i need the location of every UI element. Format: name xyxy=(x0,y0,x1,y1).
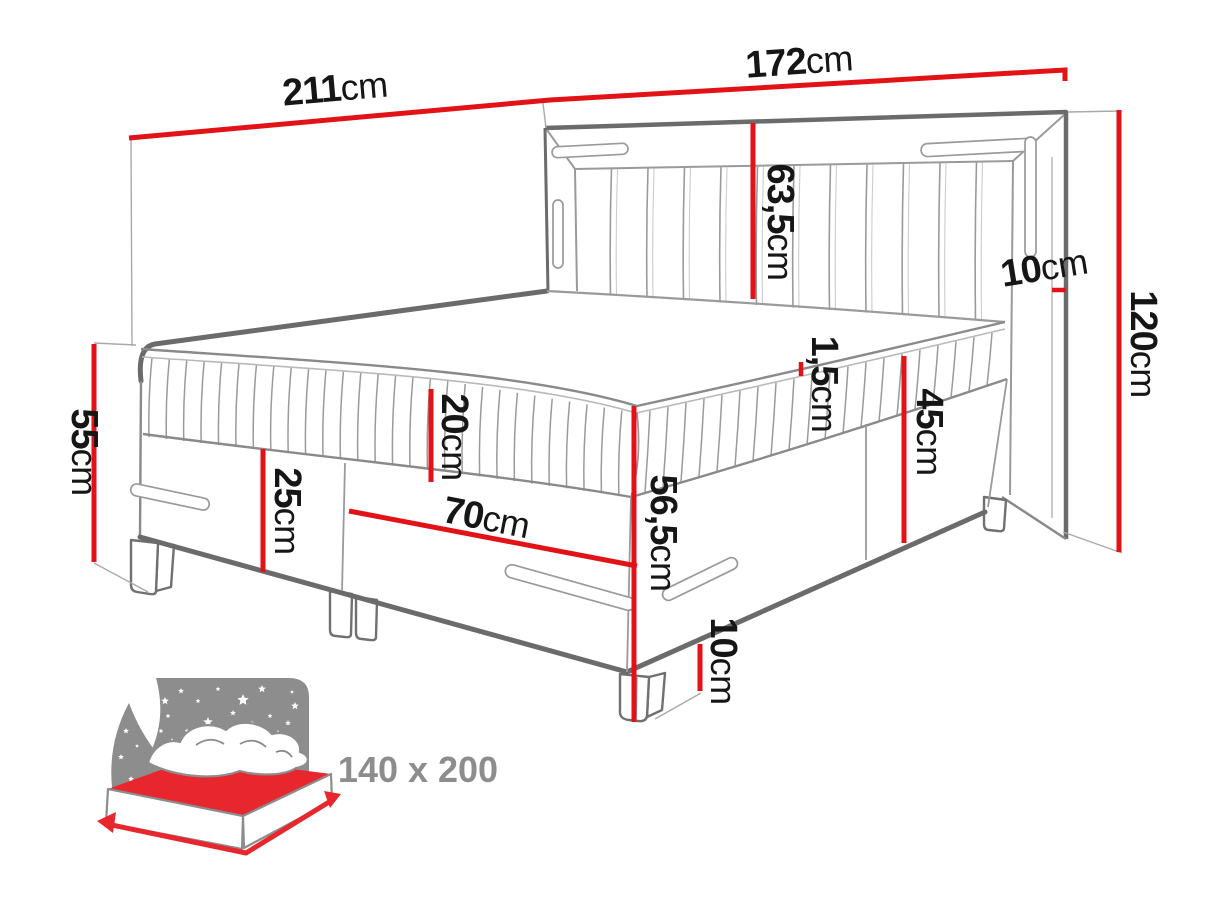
leg-center-1 xyxy=(330,591,352,637)
bed-dimension-diagram: 211cm 172cm 63,5cm 10cm 120cm 55cm 20cm … xyxy=(0,0,1214,910)
dim-label-172: 172cm xyxy=(744,37,854,86)
led-slot-side-right xyxy=(1025,137,1036,257)
diagram-canvas: 211cm 172cm 63,5cm 10cm 120cm 55cm 20cm … xyxy=(0,0,1214,910)
base-left-edge xyxy=(140,381,141,537)
star-icon xyxy=(154,689,159,694)
led-slot-side-left xyxy=(553,200,563,268)
dim-label-20: 20cm xyxy=(433,393,475,480)
dim-label-120: 120cm xyxy=(1122,290,1164,397)
dim-label-63-5: 63,5cm xyxy=(759,164,801,281)
dim-label-45: 45cm xyxy=(908,388,950,475)
leg-right xyxy=(984,497,1006,531)
leg-foot-left xyxy=(131,540,158,594)
dim-label-56-5: 56,5cm xyxy=(642,475,684,592)
dim-label-211: 211cm xyxy=(281,64,390,115)
dim-label-10-leg: 10cm xyxy=(702,617,744,704)
size-badge: 140 x 200 xyxy=(97,678,498,853)
dim-label-1-5: 1,5cm xyxy=(803,336,845,433)
dim-label-55: 55cm xyxy=(63,408,105,495)
badge-size-text: 140 x 200 xyxy=(338,749,498,790)
dim-label-25: 25cm xyxy=(266,467,308,554)
